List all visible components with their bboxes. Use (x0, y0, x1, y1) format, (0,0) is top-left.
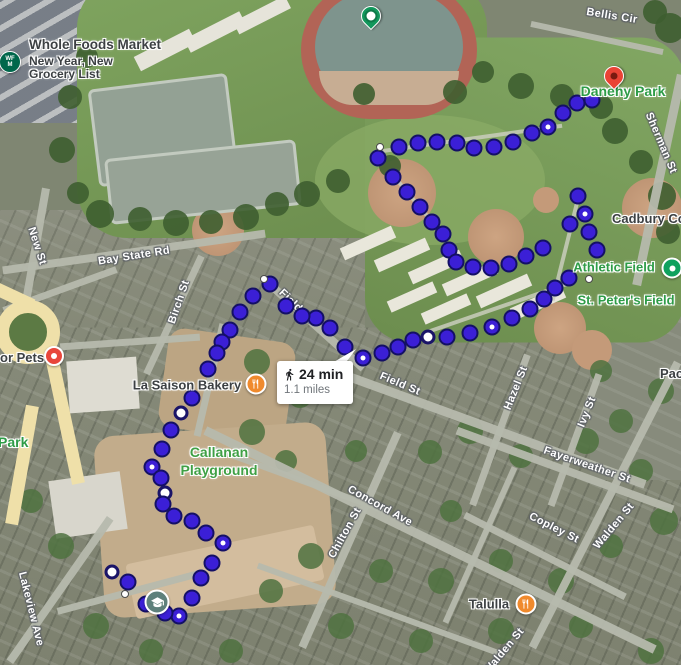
restaurant-icon (251, 379, 262, 390)
route-dot[interactable] (260, 275, 268, 283)
route-dot[interactable] (449, 135, 466, 152)
whole-foods-label[interactable]: Whole Foods Market (29, 37, 161, 52)
route-duration: 24 min (299, 366, 343, 382)
route-distance: 1.1 miles (277, 382, 353, 396)
whole-foods-icon[interactable]: WFM (0, 51, 21, 73)
route-dot[interactable] (421, 330, 436, 345)
cadbury-label[interactable]: Cadbury Co (612, 211, 681, 226)
walking-icon (283, 367, 296, 382)
route-dot[interactable] (486, 139, 503, 156)
route-dot[interactable] (174, 406, 189, 421)
route-dot[interactable] (435, 226, 452, 243)
park-edge-label[interactable]: Park (0, 434, 28, 450)
callanan-playground-label[interactable]: Playground (180, 462, 257, 478)
route-dot[interactable] (355, 350, 372, 367)
route-dot[interactable] (581, 224, 598, 241)
route-dot[interactable] (536, 291, 553, 308)
restaurant-icon (521, 599, 532, 610)
danehy-park-label[interactable]: Danehy Park (581, 83, 666, 99)
athletic-field-label[interactable]: Athletic Field (573, 260, 655, 275)
route-dot[interactable] (121, 590, 129, 598)
route-dot[interactable] (120, 574, 137, 591)
route-dot[interactable] (466, 140, 483, 157)
route-dot[interactable] (585, 275, 593, 283)
la-saison-bakery-marker[interactable] (246, 374, 267, 395)
pac-label[interactable]: Pac (660, 366, 681, 381)
route-dot[interactable] (198, 525, 215, 542)
route-dot[interactable] (505, 134, 522, 151)
pin-center-dot (362, 7, 380, 25)
route-dot[interactable] (412, 199, 429, 216)
route-dot[interactable] (518, 248, 535, 265)
marker-dot (669, 265, 675, 271)
route-dot[interactable] (540, 119, 557, 136)
route-dot[interactable] (577, 206, 594, 223)
route-dot[interactable] (429, 134, 446, 151)
route-dot[interactable] (504, 310, 521, 327)
route-dot[interactable] (166, 508, 183, 525)
route-dot[interactable] (193, 570, 210, 587)
route-dot[interactable] (391, 139, 408, 156)
map-canvas[interactable]: Bellis CirSherman StBay State RdNew StBi… (0, 0, 681, 665)
route-dot[interactable] (448, 254, 465, 271)
route-dot[interactable] (105, 565, 120, 580)
route-dot[interactable] (200, 361, 217, 378)
route-dot[interactable] (390, 339, 407, 356)
route-dot[interactable] (374, 345, 391, 362)
route-dot[interactable] (484, 319, 501, 336)
route-dot[interactable] (215, 535, 232, 552)
route-dot[interactable] (410, 135, 427, 152)
route-info-bubble[interactable]: 24 min 1.1 miles (277, 361, 353, 404)
la-saison-bakery-label[interactable]: La Saison Bakery (133, 378, 241, 393)
route-dot[interactable] (232, 304, 249, 321)
route-dot[interactable] (522, 301, 539, 318)
route-dot[interactable] (589, 242, 606, 259)
route-dot[interactable] (294, 308, 311, 325)
route-dot[interactable] (153, 470, 170, 487)
route-dot[interactable] (524, 125, 541, 142)
pets-marker[interactable] (44, 346, 64, 366)
pets-label[interactable]: or Pets (0, 350, 42, 365)
route-dot[interactable] (209, 345, 226, 362)
athletic-field-marker[interactable] (662, 258, 681, 279)
route-dot[interactable] (385, 169, 402, 186)
route-dot[interactable] (278, 298, 295, 315)
whole-foods-glyph: WFM (5, 56, 14, 68)
pin-center-dot (609, 71, 619, 81)
route-dot[interactable] (405, 332, 422, 349)
walking-route[interactable] (0, 0, 681, 665)
route-dot[interactable] (184, 513, 201, 530)
route-dot[interactable] (163, 422, 180, 439)
route-dot[interactable] (322, 320, 339, 337)
whole-foods-sublabel: Grocery List (29, 67, 100, 81)
route-dot[interactable] (570, 188, 587, 205)
route-dot[interactable] (462, 325, 479, 342)
route-dot[interactable] (370, 150, 387, 167)
school-marker[interactable] (145, 590, 170, 615)
route-dot[interactable] (439, 329, 456, 346)
route-dot[interactable] (562, 216, 579, 233)
route-dot[interactable] (501, 256, 518, 273)
route-dot[interactable] (376, 143, 384, 151)
route-dot[interactable] (245, 288, 262, 305)
route-dot[interactable] (204, 555, 221, 572)
route-dot[interactable] (465, 259, 482, 276)
whole-foods-sublabel: New Year, New (29, 54, 113, 68)
route-dot[interactable] (154, 441, 171, 458)
st-peters-field-label[interactable]: St. Peter's Field (577, 293, 674, 308)
route-dot[interactable] (535, 240, 552, 257)
talulla-label[interactable]: Talulla (469, 597, 509, 612)
route-dot[interactable] (399, 184, 416, 201)
marker-dot (51, 353, 57, 359)
route-dot[interactable] (184, 590, 201, 607)
graduation-cap-icon (150, 595, 164, 609)
route-dot[interactable] (483, 260, 500, 277)
talulla-marker[interactable] (516, 594, 537, 615)
callanan-playground-label[interactable]: Callanan (190, 444, 248, 460)
